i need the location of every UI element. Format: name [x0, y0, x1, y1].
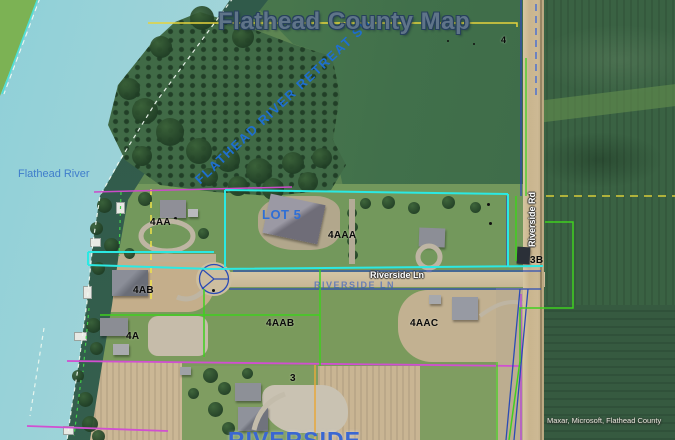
- parcel-label-4aa: 4AA: [150, 217, 171, 228]
- parcel-boundaries-overlay: [0, 0, 675, 440]
- driveway-loop-4aaa: [418, 246, 440, 268]
- boundary-cyan-parcel: [88, 190, 543, 269]
- driveway-4aac: [480, 302, 523, 316]
- shoreline-west: [2, 0, 38, 94]
- parcel-label-4aaa: 4AAA: [328, 230, 356, 241]
- parcel-label-4aab: 4AAB: [266, 318, 294, 329]
- driveway-4ab: [177, 290, 204, 299]
- subdivision-bottom-label: RIVERSIDE: [228, 427, 361, 440]
- water-boundary-dashed: [30, 328, 44, 416]
- shoreline-west-dashed: [4, 0, 40, 94]
- driveway-bottom: [254, 394, 285, 430]
- parcel-label-3b: 3B: [530, 255, 543, 266]
- road-label-riverside-ln: Riverside Ln: [370, 270, 424, 280]
- map-viewport[interactable]: FLATHEAD RIVER RETREAT SU Flathead Count…: [0, 0, 675, 440]
- parcel-label-4aac: 4AAC: [410, 318, 438, 329]
- parcel-label-4ab: 4AB: [133, 285, 154, 296]
- bank-boundary-green-dashed: [119, 192, 121, 256]
- parcel-label-4: 4: [501, 35, 506, 45]
- road-label-riverside-ln-overlay: RIVERSIDE LN: [314, 280, 395, 290]
- river-label: Flathead River: [18, 168, 90, 180]
- boundary-navy-south-pair: [506, 289, 528, 440]
- map-title: Flathead County Map: [218, 8, 470, 36]
- imagery-attribution: Maxar, Microsoft, Flathead County: [547, 416, 661, 425]
- boundary-magenta-mid: [67, 361, 521, 366]
- parcel-label-lot5: LOT 5: [262, 207, 301, 222]
- bank-boundary-green-dashed: [74, 308, 89, 436]
- cul-de-sac-branch-lines: [202, 269, 229, 289]
- parcel-label-4a: 4A: [126, 331, 139, 342]
- boundary-magenta-south: [27, 426, 168, 431]
- road-label-riverside-rd: Riverside Rd: [527, 192, 537, 247]
- parcel-label-3: 3: [290, 373, 296, 384]
